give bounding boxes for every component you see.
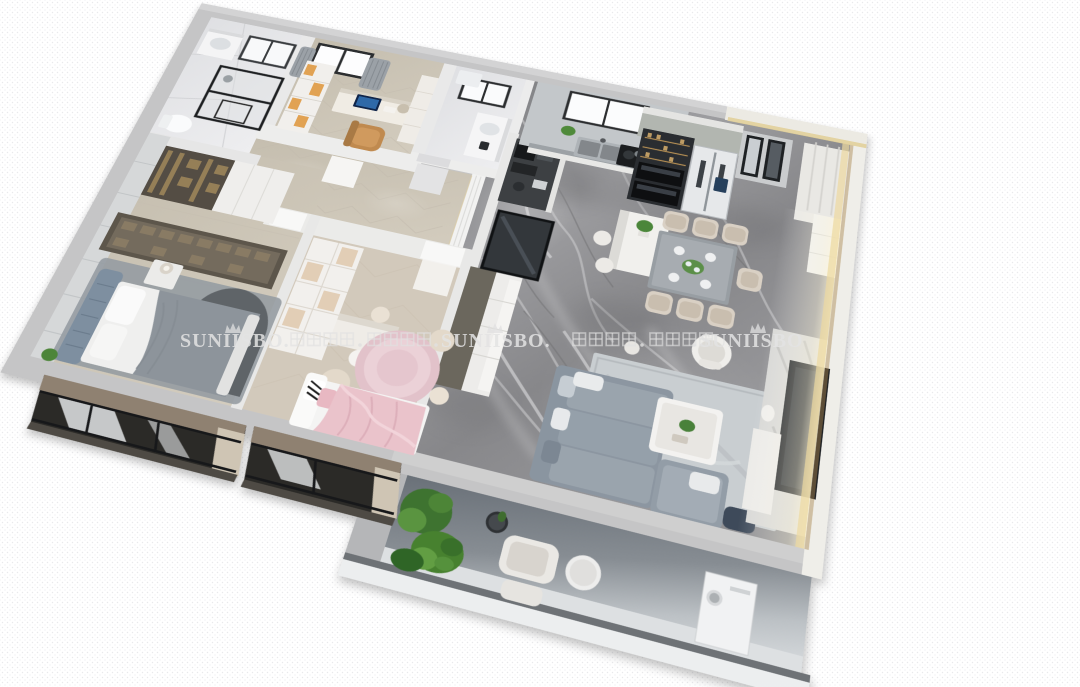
svg-text:SUNIISBO.: SUNIISBO. [180, 330, 290, 352]
svg-text:SUNIISBO.: SUNIISBO. [441, 330, 551, 352]
svg-text:SUNIISBO: SUNIISBO [700, 330, 804, 352]
